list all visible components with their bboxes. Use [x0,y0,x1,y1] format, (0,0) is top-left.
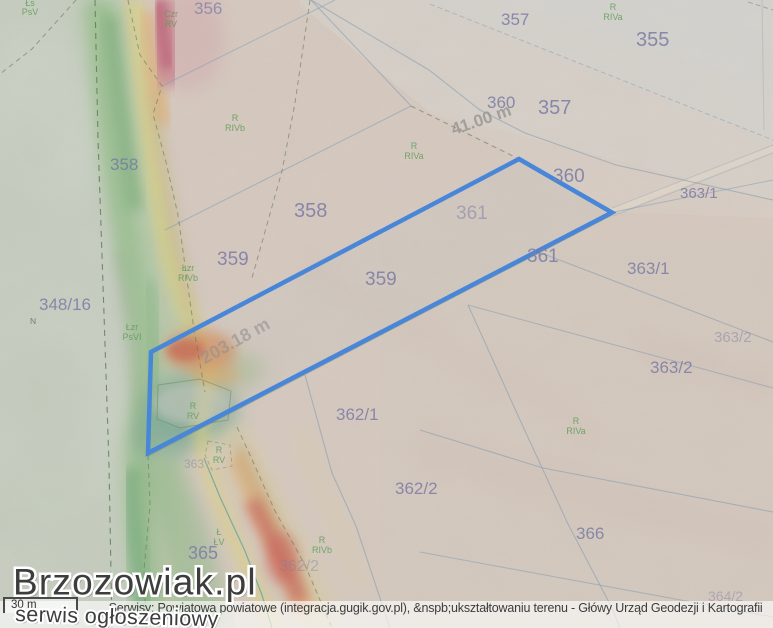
svg-text:serwis ogłoszeniowy: serwis ogłoszeniowy [15,602,219,628]
svg-text:Brzozowiak.pl: Brzozowiak.pl [13,562,257,603]
